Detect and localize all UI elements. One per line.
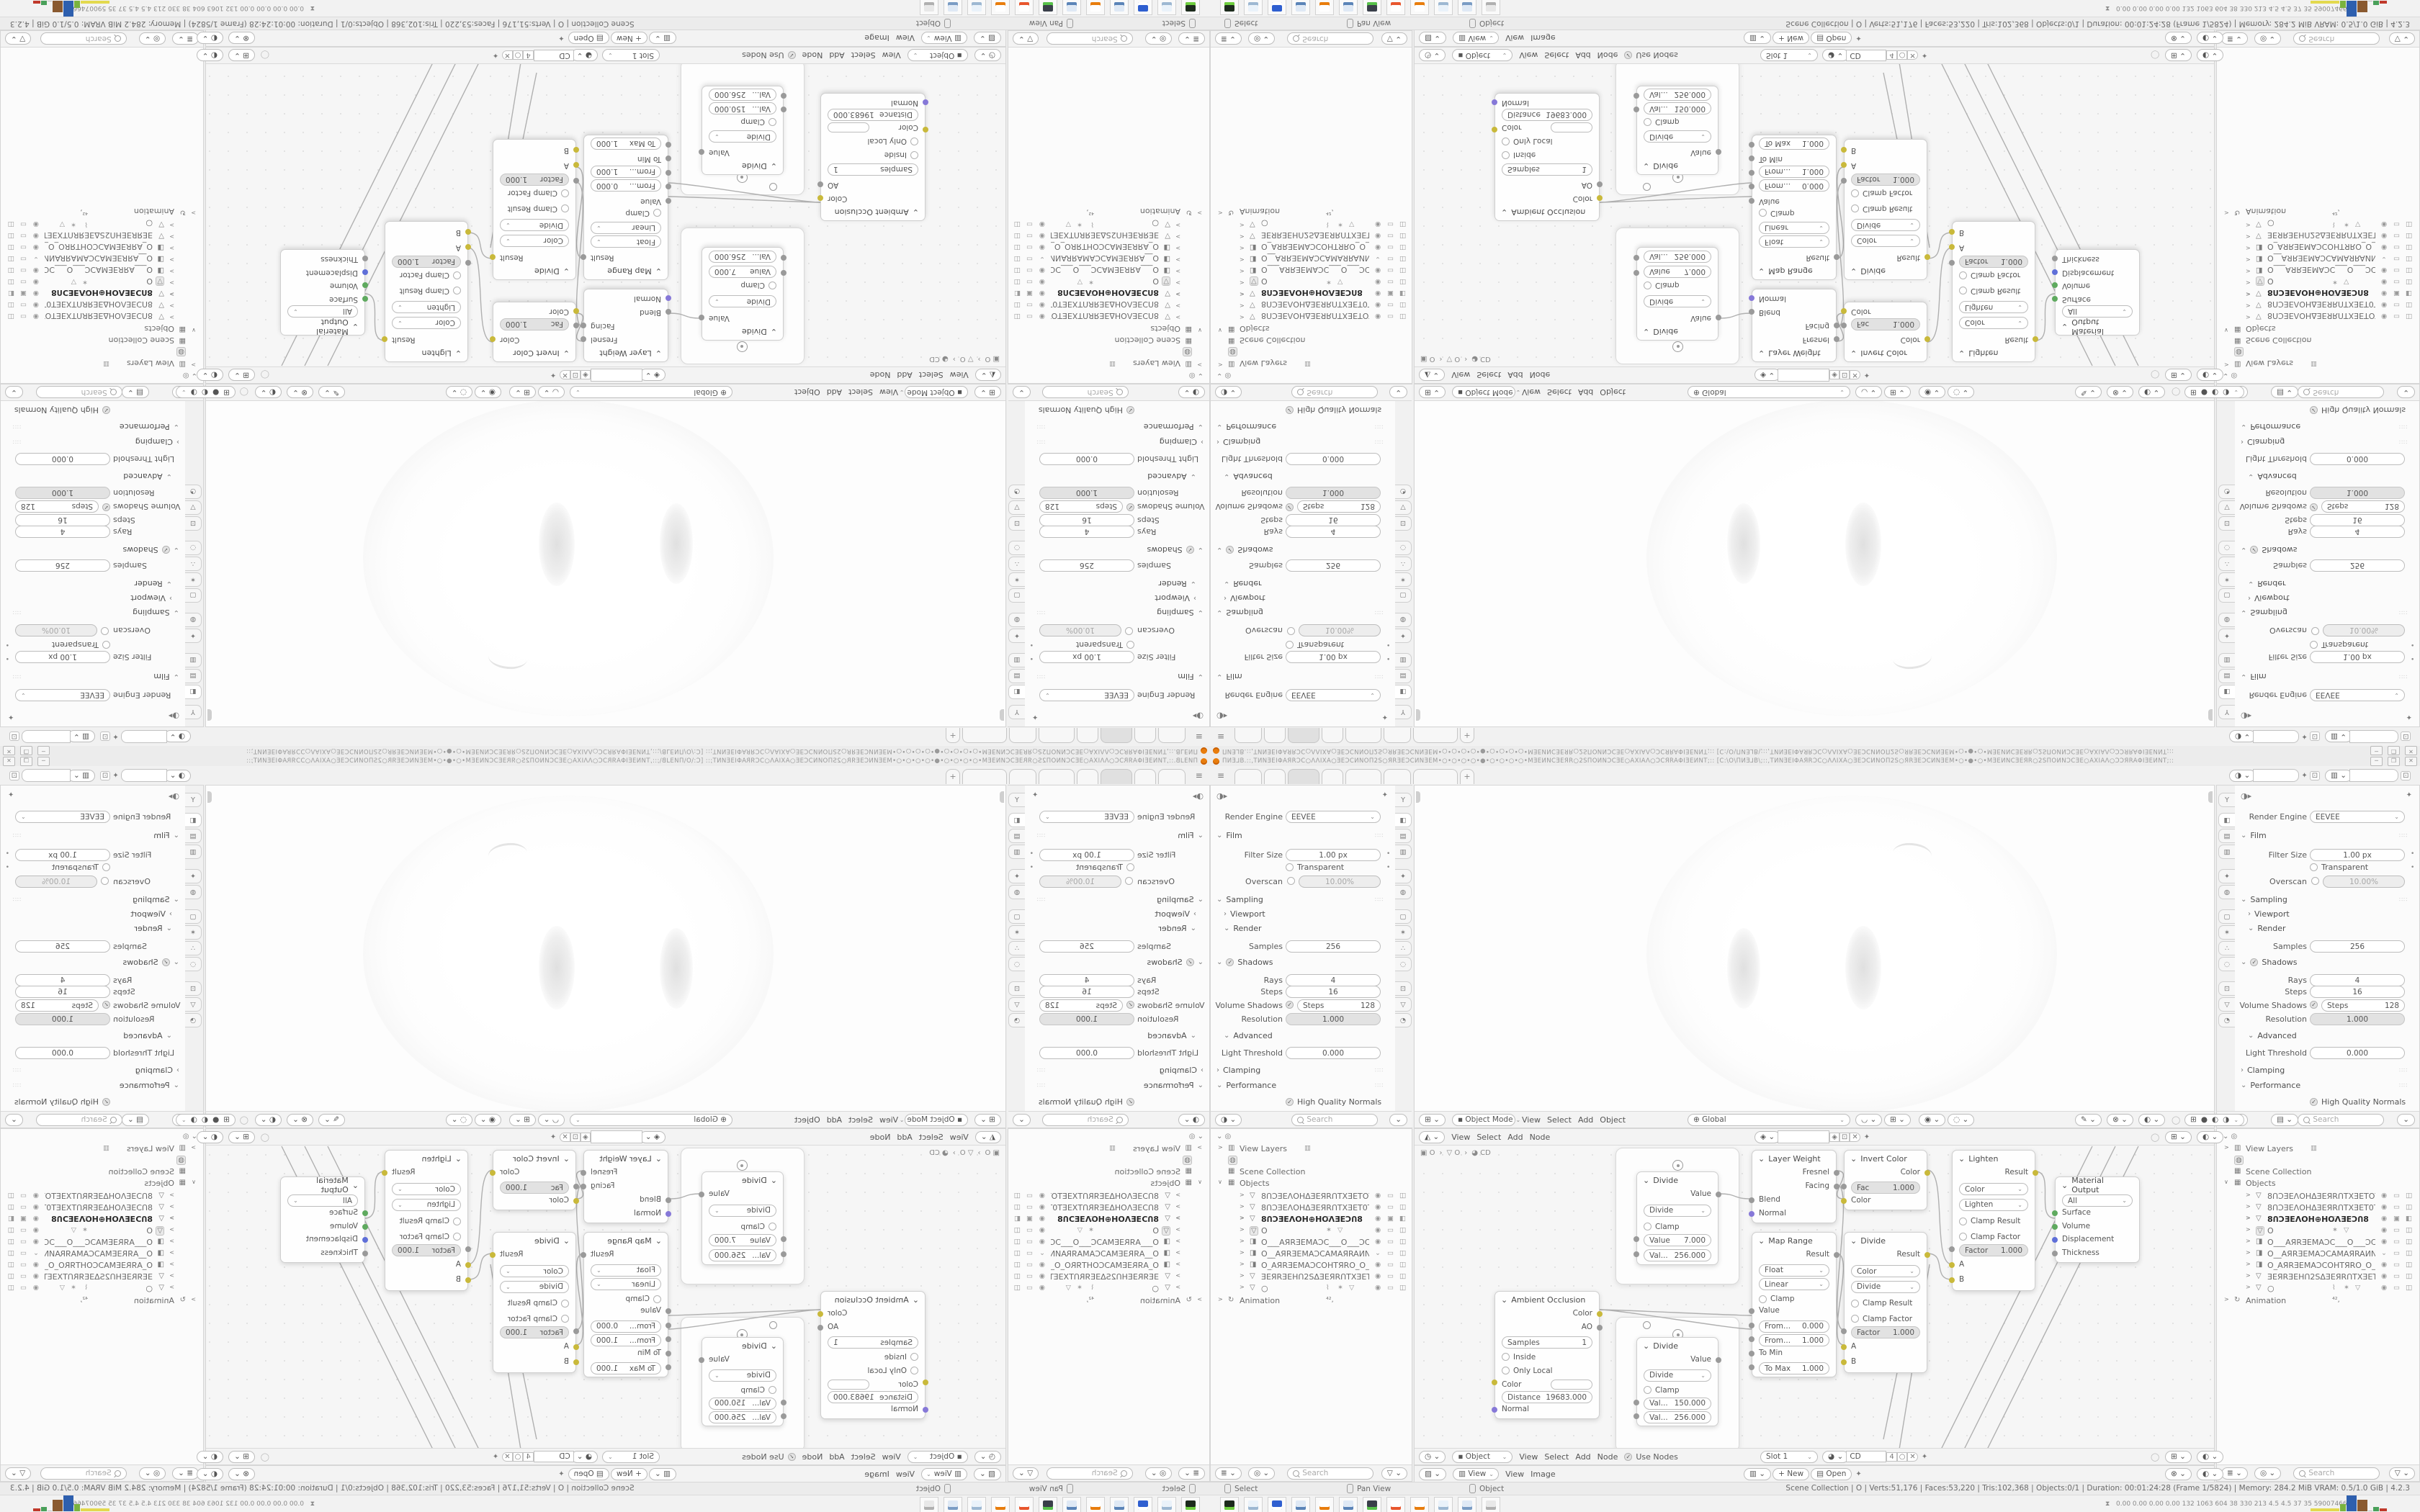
image-pin-icon[interactable]: ✦	[558, 35, 564, 42]
section-advanced[interactable]: ⌄Advanced	[1224, 472, 1273, 481]
image-browse-button[interactable]: ▥ ⌄	[1744, 32, 1771, 45]
viewport-display-icon[interactable]: ▣	[1026, 1215, 1033, 1223]
shading-rendered-icon[interactable]: ◑	[191, 1115, 197, 1124]
outliner-row[interactable]: ▦Scene Collection	[1211, 335, 1412, 346]
viewport-editor-type-button[interactable]: ⊞ ⌄	[974, 387, 1001, 399]
node-select-divide[interactable]: Divide⌄	[500, 220, 569, 232]
outliner-row[interactable]: >◨O_AЯRƎEMAƆCOHTЯRO_O_OЯRTH◉▭◫	[2217, 241, 2419, 252]
node-select-linear[interactable]: Linear⌄	[591, 222, 661, 234]
socket-out-result[interactable]	[1924, 254, 1930, 260]
node-field-val[interactable]: Val...150.000	[1644, 1398, 1711, 1410]
overlay-node-button-2[interactable]: ◐ ⌄	[197, 50, 223, 62]
workspace-tab-5[interactable]	[1039, 769, 1075, 784]
outliner-row[interactable]: ▦Scene Collection	[1, 335, 203, 346]
snap-node-button[interactable]: ⊞ ⌄	[228, 1131, 255, 1143]
render-camera-icon[interactable]: ◫	[1399, 255, 1406, 263]
node-header[interactable]: ⌄Layer Weight	[584, 346, 668, 361]
image-gizmo-button[interactable]: ⊗ ⌄	[228, 32, 255, 45]
taskbar-icon-hardware-monitor[interactable]	[1181, 0, 1200, 15]
shader-menu-view[interactable]: View	[950, 371, 969, 380]
visibility-eye-icon[interactable]: ◉	[33, 1203, 39, 1211]
viewport-display-icon[interactable]: ▭	[2393, 1284, 2400, 1292]
snapping-options-button[interactable]: ⊞ ⌄	[1884, 387, 1911, 399]
render-camera-icon[interactable]: ◧	[1014, 1215, 1021, 1223]
open-image-button[interactable]: ▤ Open	[568, 32, 609, 45]
outliner-row[interactable]: >↻Animation⁴²,	[1, 1295, 203, 1306]
visibility-eye-icon[interactable]: ◉	[1375, 1203, 1381, 1211]
region-toggle-left[interactable]	[1000, 791, 1004, 803]
outliner-row[interactable]: >◨O_AЯRƎEMAƆCOHTЯRO_O_OЯRTH◉▭◫	[1211, 241, 1412, 252]
visibility-eye-icon[interactable]: ◉	[2381, 266, 2387, 274]
properties-tab-tool[interactable]: Y	[2218, 793, 2235, 807]
node-divide[interactable]: ⌄DivideValueDivide⌄ClampValue7.000Val...…	[702, 247, 784, 341]
properties-tab-output[interactable]: ▤	[2218, 669, 2235, 683]
outliner-row[interactable]: >↻Animation⁴²,	[1211, 1295, 1412, 1306]
visibility-eye-icon[interactable]: ⌄	[2381, 255, 2387, 263]
visibility-eye-icon[interactable]: ◉	[33, 312, 39, 320]
outliner-row[interactable]: ◍	[1211, 1155, 1412, 1166]
material-slot-dropdown[interactable]: Slot 1⌄	[1760, 50, 1818, 62]
outliner-display-button[interactable]: ≣ ⌄	[172, 33, 199, 45]
scene-selector-copy-icon[interactable]: ⊡	[100, 771, 110, 780]
properties-tab-particles[interactable]: ∴	[1395, 557, 1412, 571]
viewport-end-button[interactable]: ▤ ⌄	[122, 1114, 149, 1126]
outliner-row[interactable]: >◨O__AЯRƎEMAƆCAMAЯRAИNAΠ__O⌄▭◫	[1211, 253, 1412, 264]
node-field-val[interactable]: Val...150.000	[1644, 102, 1711, 114]
properties-tab-object-data[interactable]: ▽	[2218, 997, 2235, 1012]
node-material-output[interactable]: ⌄Material OutputAll⌄SurfaceVolumeDisplac…	[2055, 1176, 2140, 1263]
section-shadows[interactable]: ⌄✓Shadows	[2241, 545, 2298, 554]
properties-tab-object[interactable]: ▢	[185, 909, 202, 924]
material-slot-dropdown[interactable]: Slot 1⌄	[602, 50, 660, 62]
viewport-display-icon[interactable]: ▭	[1026, 1261, 1033, 1269]
node-layer-weight[interactable]: ⌄Layer WeightFresnelFacingBlendNormal	[1752, 1150, 1837, 1223]
outliner-row[interactable]: >↻Animation⁴²,	[1008, 206, 1209, 217]
socket-in[interactable]	[665, 170, 671, 176]
overscan-checkbox[interactable]	[1125, 877, 1133, 885]
viewlayer-selector-type-icon[interactable]: ▥ ⌄	[68, 731, 95, 743]
properties-tab-object-data[interactable]: ▽	[1008, 997, 1025, 1012]
node-layer-weight[interactable]: ⌄Layer WeightFresnelFacingBlendNormal	[583, 1150, 668, 1223]
outliner-row[interactable]: >◨O___AЯRƎEMAƆC___O___ƆCAMƎ◉▭◫	[1, 1237, 203, 1248]
node-divide[interactable]: ⌄DivideResultColor⌄Divide⌄Clamp ResultCl…	[1844, 139, 1927, 280]
viewport-display-icon[interactable]: ▭	[1026, 1226, 1033, 1234]
viewport-display-icon[interactable]: ▭	[20, 1284, 27, 1292]
scene-selector-field[interactable]	[2253, 769, 2299, 782]
filter-size-field[interactable]: 1.00 px	[1039, 849, 1134, 861]
overscan-checkbox[interactable]	[1125, 627, 1133, 635]
taskbar-icon-notepad[interactable]	[1157, 1497, 1176, 1512]
visibility-eye-icon[interactable]: ⌄	[33, 255, 39, 263]
outliner-row[interactable]: >▽O✶▽◉▭◫	[1, 1225, 203, 1236]
workspace-tab-4[interactable]	[1322, 728, 1343, 743]
viewport-display-icon[interactable]: ▭	[1026, 278, 1033, 286]
node-header[interactable]: ⌄Divide	[702, 1338, 783, 1354]
new-image-button[interactable]: + New	[611, 1468, 647, 1480]
options-chevron-button[interactable]: ⌄	[2397, 1114, 2415, 1126]
taskbar-icon-document-scroll[interactable]	[1458, 1497, 1476, 1512]
visibility-eye-icon[interactable]: ◉	[33, 266, 39, 274]
node-field-fac[interactable]: Fac1.000	[500, 1182, 569, 1194]
viewport-editor-type-button[interactable]: ⊞ ⌄	[1419, 1114, 1446, 1126]
node-select-divide[interactable]: Divide⌄	[1851, 220, 1920, 232]
workspace-tab-3[interactable]	[1101, 728, 1132, 743]
outliner-row[interactable]: ▦Scene Collection	[1211, 1166, 1412, 1177]
node-layer-weight[interactable]: ⌄Layer WeightFresnelFacingBlendNormal	[1752, 289, 1837, 362]
image-menu-view[interactable]: View	[1505, 1470, 1524, 1479]
shader-pin-icon[interactable]: ✦	[550, 372, 556, 379]
socket-out-color[interactable]	[817, 1311, 823, 1317]
outliner-row[interactable]: >▽ƎEЯRƎEHՈ2SΔƎEЯRՈTXƎETOTƎEXT◉▭◫	[1211, 230, 1412, 240]
viewport-display-icon[interactable]: ▭	[2393, 301, 2400, 309]
outliner-search-input[interactable]: Search	[1287, 33, 1373, 45]
render-engine-dropdown[interactable]: EEVEE⌄	[2310, 689, 2405, 701]
overscan-field[interactable]: 10.00%	[15, 876, 97, 888]
outliner-display-button[interactable]: ≣ ⌄	[1178, 33, 1205, 45]
volume-shadows-steps-field[interactable]: Steps128	[1297, 999, 1381, 1012]
socket-in-displacement[interactable]	[2052, 269, 2058, 275]
unlink-datablock-icon[interactable]: ✕	[1850, 1133, 1860, 1142]
outliner-row[interactable]: >▽○⌇✶▽◉▭◫	[2217, 218, 2419, 229]
render-camera-icon[interactable]: ◫	[1399, 1272, 1406, 1280]
shader-menu-select[interactable]: Select	[1476, 1133, 1501, 1142]
node-header[interactable]: ⌄Material Output	[2056, 1177, 2139, 1193]
socket-in-b[interactable]	[573, 147, 579, 153]
shader-menu-node-2[interactable]: Node	[802, 51, 823, 60]
outliner-row[interactable]: >▽ƎEЯRƎEHՈ2SΔƎEЯRՈTXƎETOTƎEXT◉▭◫	[1008, 1272, 1209, 1282]
shadows-checkbox[interactable]: ✓	[2250, 546, 2258, 554]
visibility-eye-icon[interactable]: ◉	[2381, 301, 2387, 309]
properties-tab-world[interactable]: ◍	[1395, 885, 1412, 899]
section-shadows[interactable]: ⌄✓Shadows	[1147, 958, 1204, 967]
samples-field[interactable]: 256	[1039, 940, 1134, 953]
section-viewport[interactable]: ›Viewport	[130, 593, 172, 603]
samples-field[interactable]: 256	[1039, 559, 1134, 572]
region-toggle-left[interactable]	[1000, 709, 1004, 721]
socket-in-blend[interactable]	[1749, 1197, 1754, 1203]
options-chevron-button[interactable]: ⌄	[5, 387, 23, 399]
properties-tab-constraints[interactable]: ⊡	[1395, 981, 1412, 996]
overscan-field[interactable]: 10.00%	[15, 624, 97, 636]
socket-in-b[interactable]	[465, 229, 471, 235]
shader-menu-view[interactable]: View	[950, 1133, 969, 1142]
volume-shadows-checkbox[interactable]: ✓	[1286, 503, 1294, 511]
taskbar-icon-calculator[interactable]	[1291, 1497, 1310, 1512]
light-threshold-field[interactable]: 0.000	[1286, 453, 1381, 465]
visibility-eye-icon[interactable]: ◉	[33, 289, 39, 297]
outliner-row[interactable]: ▦Scene Collection	[2217, 335, 2419, 346]
copy-datablock-icon[interactable]: ⊡	[1839, 371, 1850, 380]
node-check-clamp[interactable]	[768, 1223, 776, 1230]
steps-field[interactable]: 16	[2310, 986, 2405, 998]
taskbar-icon-system-monitor[interactable]	[1363, 0, 1381, 15]
outliner-display-mode[interactable]: ⌄ ◎	[1216, 1133, 1231, 1140]
overscan-checkbox[interactable]	[101, 627, 109, 635]
visibility-eye-icon[interactable]: ◉	[2381, 289, 2387, 297]
fake-user-shield-icon[interactable]: ◈	[581, 1133, 591, 1142]
socket-out-fresnel[interactable]	[581, 1170, 586, 1176]
node-color-field[interactable]	[1551, 123, 1592, 133]
visibility-eye-icon[interactable]: ◉	[1039, 1192, 1045, 1200]
material-name-value[interactable]: CD	[1846, 50, 1886, 61]
node-field-distance[interactable]: Distance19683.000	[1502, 109, 1592, 121]
outliner-row[interactable]: >◨O_AЯRƎEMAƆCOHTЯRO_O_OЯRTH◉▭◫	[1, 1260, 203, 1271]
properties-search-input[interactable]: Search	[1291, 387, 1378, 399]
properties-tab-modifiers[interactable]: ✶	[1008, 925, 1025, 940]
socket-out-value[interactable]	[1716, 1192, 1721, 1197]
visibility-eye-icon[interactable]: ◉	[1039, 232, 1045, 240]
material-name-field[interactable]	[1778, 1130, 1829, 1143]
taskbar-icon-firefox[interactable]	[1015, 1497, 1034, 1512]
volume-shadows-checkbox[interactable]: ✓	[2310, 1001, 2318, 1009]
rays-field[interactable]: 4	[15, 526, 110, 538]
viewport-display-icon[interactable]: ▭	[2393, 1272, 2400, 1280]
socket-in-to-min[interactable]	[665, 156, 671, 161]
gizmo-toggle-button[interactable]: ⊗ ⌄	[287, 1114, 313, 1126]
node-select-linear[interactable]: Linear⌄	[1759, 1278, 1829, 1290]
visibility-eye-icon[interactable]: ◉	[2381, 278, 2387, 286]
node-ambient-occlusion[interactable]: ⌄Ambient OcclusionColorAOSamples1InsideO…	[1494, 1291, 1600, 1419]
shader-menu-add-2[interactable]: Add	[829, 1452, 844, 1462]
node-check-clamp-result[interactable]	[1851, 204, 1859, 212]
outliner-row[interactable]: ▦Scene Collection	[1008, 335, 1209, 346]
outliner-row[interactable]: >▽8ՈƆƎEΛOHΔƎEЯRՈTXƎETOTƎEXT◉▭◫	[1008, 310, 1209, 321]
node-invert-color[interactable]: ⌄Invert ColorColorFac1.000Color	[1844, 1150, 1927, 1210]
properties-tab-physics[interactable]: ◌	[1395, 541, 1412, 555]
new-image-button[interactable]: + New	[1773, 32, 1809, 45]
viewlayer-selector-field[interactable]	[22, 730, 71, 743]
outliner-row[interactable]: >▽8ՈƆƎEΛOHΔƎEЯRՈTXƎET0TƎEXT◉▭◫	[1, 1202, 203, 1213]
viewport-display-icon[interactable]: ▭	[1026, 301, 1033, 309]
node-map-range[interactable]: ⌄Map RangeResultFloat⌄Linear⌄ClampValueF…	[583, 135, 668, 280]
socket-in-normal[interactable]	[923, 99, 928, 105]
workspace-tab-5[interactable]	[1345, 728, 1381, 743]
outliner-row[interactable]: ∨▦Objects	[1211, 1178, 1412, 1189]
outliner-row[interactable]: >◨O__AЯRƎEMAƆCAMAЯRAИNAΠ__O⌄▭◫	[1008, 253, 1209, 264]
viewport-display-icon[interactable]: ▭	[2393, 278, 2400, 286]
node-divide[interactable]: ⌄DivideResultColor⌄Divide⌄Clamp ResultCl…	[1844, 1232, 1927, 1373]
scene-selector-type-icon[interactable]: ◑ ⌄	[2229, 731, 2256, 743]
outliner-row[interactable]: >▽8ՈƆƎEΛOHΔƎEЯRՈTXƎETOTƎEXT◉▭◫	[1, 1191, 203, 1202]
socket-in[interactable]	[1633, 93, 1639, 99]
render-camera-icon[interactable]: ◧	[2406, 1215, 2412, 1223]
node-field-value[interactable]: Value7.000	[709, 1234, 776, 1246]
socket-out-fresnel[interactable]	[581, 336, 586, 342]
render-camera-icon[interactable]: ◫	[8, 1192, 14, 1200]
node-check-inside[interactable]	[1502, 151, 1510, 159]
node-header[interactable]: ⌄Ambient Occlusion	[821, 204, 925, 220]
node-field-fac[interactable]: Fac1.000	[1851, 318, 1920, 330]
visibility-eye-icon[interactable]: ◉	[1375, 1261, 1381, 1269]
visibility-eye-icon[interactable]: ◉	[1375, 312, 1381, 320]
socket-out-ao[interactable]	[817, 1325, 823, 1331]
visibility-eye-icon[interactable]: ◉	[2381, 312, 2387, 320]
viewport-end-button[interactable]: ▤ ⌄	[122, 387, 149, 399]
shader-menu-add[interactable]: Add	[897, 371, 912, 380]
proportional-edit-button[interactable]: ◉ ⌄	[1919, 387, 1945, 399]
properties-tab-particles[interactable]: ∴	[2218, 557, 2235, 571]
unlink-datablock-icon[interactable]: ✕	[560, 1133, 570, 1142]
section-render[interactable]: ⌄Render	[1224, 579, 1262, 588]
outliner-filter-button[interactable]: ◎ ⌄	[2254, 1467, 2281, 1480]
render-camera-icon[interactable]: ◫	[1014, 1238, 1021, 1246]
high-quality-normals-checkbox[interactable]: ✓	[102, 1098, 110, 1106]
outliner-row[interactable]: >▽8ՈƆƎEΛOHΔƎEЯRՈTXƎET0TƎEXT◉▭◫	[2217, 1202, 2419, 1213]
node-check-clamp-result[interactable]	[561, 204, 569, 212]
properties-pin-icon[interactable]: ✦	[8, 791, 14, 799]
taskbar-icon-calculator-2[interactable]	[1062, 1497, 1081, 1512]
render-camera-icon[interactable]: ◫	[1014, 301, 1021, 309]
restore-button[interactable]: ❐	[2388, 747, 2400, 756]
node-lighten[interactable]: ⌄LightenResultColor⌄Lighten⌄Clamp Result…	[1952, 221, 2035, 362]
outliner-row[interactable]: >▽O✶▽◉▭◫	[2217, 276, 2419, 287]
shading-solid-icon[interactable]: ●	[2201, 388, 2208, 397]
node-select-all[interactable]: All⌄	[287, 1194, 358, 1207]
socket-in-to-min[interactable]	[665, 1351, 671, 1356]
socket-in-displacement[interactable]	[362, 1237, 368, 1243]
open-image-button[interactable]: ▤ Open	[568, 1468, 609, 1480]
outliner-row[interactable]: >◨O__AЯRƎEMAƆCAMAЯRAИNAΠ__O⌄▭◫	[1008, 1248, 1209, 1259]
shading-wireframe-icon[interactable]: ⊞	[223, 1115, 230, 1124]
outliner-funnel-button[interactable]: ▽ ⌄	[2389, 33, 2415, 45]
viewport-display-icon[interactable]: ▣	[20, 1215, 27, 1223]
node-divide[interactable]: ⌄DivideResultColor⌄Divide⌄Clamp ResultCl…	[493, 1232, 576, 1373]
taskbar-icon-calculator[interactable]	[1110, 1497, 1129, 1512]
node-check-clamp-factor[interactable]	[453, 1233, 461, 1241]
node-check-clamp[interactable]	[653, 1295, 661, 1303]
render-camera-icon[interactable]: ◫	[2406, 220, 2412, 228]
outliner-row[interactable]: >◨O__AЯRƎEMAƆCAMAЯRAИNAΠ__O⌄▭◫	[1, 1248, 203, 1259]
visibility-eye-icon[interactable]: ◉	[1039, 1203, 1045, 1211]
resolution-field[interactable]: 1.000	[15, 487, 110, 499]
shader-menu-node[interactable]: Node	[870, 371, 891, 380]
outliner-row[interactable]: ∨▦Objects	[1211, 323, 1412, 334]
filter-size-field[interactable]: 1.00 px	[1286, 651, 1381, 663]
node-header[interactable]: ⌄Lighten	[1953, 1151, 2035, 1166]
viewport-display-icon[interactable]: ▭	[2393, 243, 2400, 251]
node-header[interactable]: ⌄Material Output	[281, 1177, 364, 1193]
new-image-button[interactable]: + New	[611, 32, 647, 45]
material-shield-icon[interactable]: ○	[1897, 1452, 1908, 1462]
socket-out-value[interactable]	[1716, 149, 1721, 155]
outliner-row[interactable]: >▥View Layers▥	[2217, 358, 2419, 369]
render-camera-icon[interactable]: ◫	[1399, 243, 1406, 251]
node-check-clamp-factor[interactable]	[561, 1315, 569, 1323]
section-performance[interactable]: ⌄Performance	[1216, 422, 1276, 431]
taskbar-icon-firefox[interactable]	[1386, 0, 1405, 15]
visibility-eye-icon[interactable]: ◉	[1375, 301, 1381, 309]
snap-node-button[interactable]: ⊞ ⌄	[2165, 369, 2192, 382]
snap-node-button-2[interactable]: ⊞ ⌄	[2165, 50, 2192, 62]
socket-in-normal[interactable]	[1749, 295, 1754, 301]
node-select-all[interactable]: All⌄	[2062, 1194, 2133, 1207]
node-field-samples[interactable]: Samples1	[828, 1336, 918, 1349]
render-camera-icon[interactable]: ◧	[1399, 289, 1406, 297]
material-slot-dropdown[interactable]: Slot 1⌄	[602, 1451, 660, 1463]
taskbar-icon-calculator[interactable]	[1291, 0, 1310, 15]
node-divide[interactable]: ⌄DivideValueDivide⌄ClampVal...150.000Val…	[702, 1337, 784, 1426]
material-type-icon[interactable]: ◈ ⌄	[1754, 369, 1780, 382]
socket-out-value[interactable]	[699, 315, 704, 320]
socket-in-thickness[interactable]	[362, 256, 368, 261]
node-header[interactable]: ⌄Map Range	[584, 1233, 668, 1248]
properties-tab-physics[interactable]: ◌	[2218, 541, 2235, 555]
viewport-display-icon[interactable]: ▭	[1387, 1203, 1394, 1211]
workspace-tab-3[interactable]	[1288, 728, 1319, 743]
outliner-display-button[interactable]: ≣ ⌄	[1215, 1467, 1242, 1480]
viewport-menu-add[interactable]: Add	[827, 1115, 842, 1125]
properties-tab-physics[interactable]: ◌	[1008, 957, 1025, 971]
overscan-field[interactable]: 10.00%	[1299, 876, 1381, 888]
transparent-checkbox[interactable]	[2310, 863, 2318, 871]
options-chevron-button[interactable]: ⌄	[1389, 1114, 1407, 1126]
outliner-row[interactable]: >▽ƎEЯRƎEHՈ2SΔƎEЯRՈTXƎETOTƎEXT◉▭◫	[1, 230, 203, 240]
outliner-filter-button[interactable]: ◎ ⌄	[2254, 33, 2281, 45]
socket-in[interactable]	[781, 255, 786, 261]
render-camera-icon[interactable]: ◫	[8, 1261, 14, 1269]
render-camera-icon[interactable]: ◫	[1399, 1192, 1406, 1200]
socket-in[interactable]	[665, 142, 671, 148]
properties-editor-icon[interactable]: ◑▸	[2241, 711, 2251, 721]
section-shadows[interactable]: ⌄✓Shadows	[1216, 958, 1273, 967]
node-check-inside[interactable]	[910, 1353, 918, 1361]
material-unlink-icon[interactable]: ✕	[502, 51, 512, 60]
outliner-row[interactable]: >▽8ՈƆƎEΛOHΔƎEЯRՈTXƎET0TƎEXT◉▭◫	[1008, 1202, 1209, 1213]
high-quality-normals-checkbox[interactable]: ✓	[1286, 406, 1294, 414]
workspace-tab-4[interactable]	[1322, 769, 1343, 784]
section-sampling[interactable]: ⌄Sampling	[1216, 608, 1263, 617]
outliner-row[interactable]: >◨O___AЯRƎEMAƆC___O___ƆCAMƎ◉▭◫	[1211, 264, 1412, 275]
node-field-factor[interactable]: Factor1.000	[1959, 1244, 2028, 1256]
node-field-from[interactable]: From...0.000	[1759, 1320, 1829, 1333]
section-viewport[interactable]: ›Viewport	[1224, 593, 1265, 603]
image-view-dropdown[interactable]: ▥ View⌄	[921, 1468, 967, 1480]
rays-field[interactable]: 4	[1039, 526, 1134, 538]
properties-tab-particles[interactable]: ∴	[185, 557, 202, 571]
outliner-row[interactable]: >↻Animation⁴²,	[1, 206, 203, 217]
workspace-tab-2[interactable]	[1264, 769, 1286, 784]
render-camera-icon[interactable]: ◫	[2406, 1226, 2412, 1234]
shadows-checkbox[interactable]: ✓	[1226, 546, 1234, 554]
volume-shadows-checkbox[interactable]: ✓	[1126, 503, 1134, 511]
outliner-funnel-button[interactable]: ▽ ⌄	[1013, 33, 1039, 45]
viewport-menu-object[interactable]: Object	[794, 1115, 820, 1125]
socket-out-value[interactable]	[1716, 1357, 1721, 1363]
section-viewport[interactable]: ›Viewport	[1155, 593, 1196, 603]
close-button[interactable]: ✕	[2405, 747, 2417, 756]
taskbar-icon-firefox[interactable]	[1015, 0, 1034, 15]
properties-editor-icon[interactable]: ◑▸	[1193, 791, 1204, 801]
node-field-from[interactable]: From...1.000	[1759, 166, 1829, 178]
shader-pin-icon[interactable]: ✦	[550, 1133, 556, 1141]
outliner-row[interactable]: >◨O___AЯRƎEMAƆC___O___ƆCAMƎ◉▭◫	[1, 264, 203, 275]
socket-in[interactable]	[665, 1323, 671, 1328]
viewport-display-icon[interactable]: ▭	[1026, 232, 1033, 240]
image-editor-type-button[interactable]: ▨ ⌄	[1419, 32, 1446, 45]
node-header[interactable]: ⌄Map Range	[584, 264, 668, 279]
properties-editor-icon[interactable]: ◑▸	[169, 711, 179, 721]
workspace-tab-1[interactable]	[1234, 728, 1262, 743]
menu-hamburger-icon[interactable]: ≡	[1196, 732, 1203, 742]
shading-solid-icon[interactable]: ●	[2201, 1115, 2208, 1124]
render-camera-icon[interactable]: ◫	[1014, 232, 1021, 240]
outliner-row[interactable]: >▽O✶▽◉▭◫	[1008, 1225, 1209, 1236]
transform-orientation-dropdown[interactable]: ⊕ Global⌄	[1688, 387, 1850, 399]
properties-pin-icon[interactable]: ✦	[1032, 713, 1038, 721]
node-field-samples[interactable]: Samples1	[1502, 1336, 1592, 1349]
node-select-linear[interactable]: Linear⌄	[591, 1278, 661, 1290]
outliner-filter-button[interactable]: ◎ ⌄	[139, 1467, 166, 1480]
